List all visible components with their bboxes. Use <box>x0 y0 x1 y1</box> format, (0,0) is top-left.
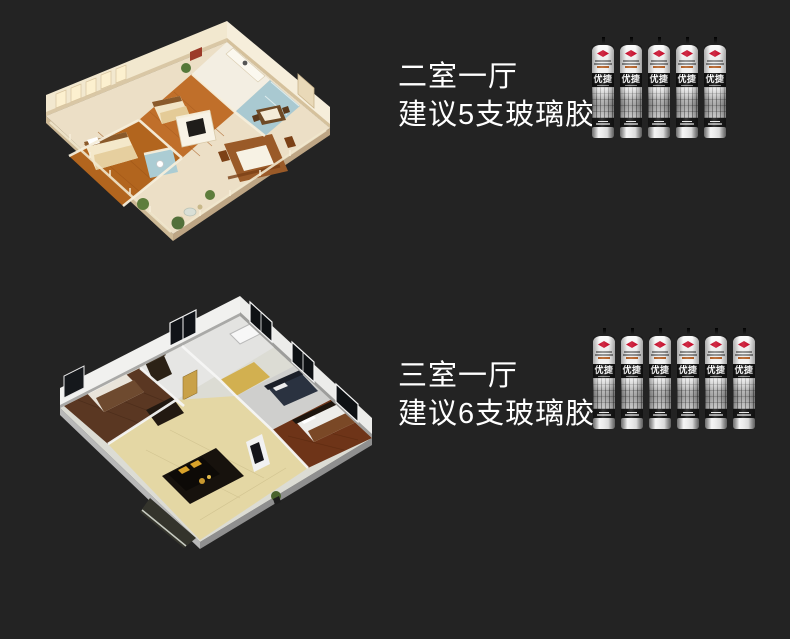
brand-diamond-logo-icon <box>709 50 721 57</box>
tube-foot-band <box>677 409 699 418</box>
tube-label-band: 优捷 <box>677 364 699 378</box>
tube-base <box>704 127 726 138</box>
sealant-tube: 优捷 <box>621 328 643 429</box>
tube-base <box>648 127 670 138</box>
sealant-tube: 优捷 <box>677 328 699 429</box>
tube-shoulder <box>620 45 642 73</box>
tube-label-band: 优捷 <box>705 364 727 378</box>
brand-diamond-logo-icon <box>625 50 637 57</box>
tube-shoulder <box>593 336 615 364</box>
tube-artwork <box>676 87 698 118</box>
tube-nozzle-icon <box>659 328 662 336</box>
tube-foot-band <box>620 118 642 127</box>
tube-brand-label: 优捷 <box>649 74 668 84</box>
tube-base <box>620 127 642 138</box>
tube-artwork <box>677 378 699 409</box>
tube-artwork <box>705 378 727 409</box>
brand-diamond-logo-icon <box>626 341 638 348</box>
tube-fineprint <box>707 351 725 360</box>
tube-brand-label: 优捷 <box>705 74 724 84</box>
section-subtitle: 建议6支玻璃胶 <box>398 395 595 433</box>
tube-foot-band <box>592 118 614 127</box>
tube-foot-band <box>705 409 727 418</box>
tube-artwork <box>620 87 642 118</box>
tube-nozzle-icon <box>602 37 605 45</box>
tube-label-band: 优捷 <box>593 364 615 378</box>
tube-base <box>676 127 698 138</box>
tube-base <box>733 418 755 429</box>
tube-foot-band <box>593 409 615 418</box>
tube-fineprint <box>650 60 668 69</box>
tube-artwork <box>593 378 615 409</box>
tube-shoulder <box>705 336 727 364</box>
tube-fineprint <box>594 60 612 69</box>
tube-brand-label: 优捷 <box>594 365 613 375</box>
tube-label-band: 优捷 <box>620 73 642 87</box>
sealant-tube: 优捷 <box>733 328 755 429</box>
sealant-tube: 优捷 <box>593 328 615 429</box>
tube-base <box>649 418 671 429</box>
section-subtitle: 建议5支玻璃胶 <box>398 96 595 134</box>
tube-nozzle-icon <box>687 328 690 336</box>
tube-shoulder <box>621 336 643 364</box>
tube-brand-label: 优捷 <box>621 74 640 84</box>
brand-diamond-logo-icon <box>597 50 609 57</box>
tube-nozzle-icon <box>715 328 718 336</box>
tube-nozzle-icon <box>686 37 689 45</box>
sealant-tube: 优捷 <box>620 37 642 138</box>
brand-diamond-logo-icon <box>710 341 722 348</box>
tube-fineprint <box>679 351 697 360</box>
tube-fineprint <box>678 60 696 69</box>
tube-brand-label: 优捷 <box>677 74 696 84</box>
brand-diamond-logo-icon <box>682 341 694 348</box>
tube-fineprint <box>651 351 669 360</box>
tube-fineprint <box>595 351 613 360</box>
section-title: 二室一厅 <box>398 58 595 96</box>
tube-artwork <box>648 87 670 118</box>
tube-artwork <box>621 378 643 409</box>
tube-nozzle-icon <box>630 37 633 45</box>
tube-nozzle-icon <box>631 328 634 336</box>
tube-base <box>592 127 614 138</box>
tube-base <box>677 418 699 429</box>
sealant-tube: 优捷 <box>705 328 727 429</box>
tube-shoulder <box>592 45 614 73</box>
tube-brand-label: 优捷 <box>593 74 612 84</box>
tube-label-band: 优捷 <box>648 73 670 87</box>
sealant-tube: 优捷 <box>704 37 726 138</box>
tube-shoulder <box>733 336 755 364</box>
tube-brand-label: 优捷 <box>678 365 697 375</box>
sealant-tube: 优捷 <box>648 37 670 138</box>
tube-shoulder <box>677 336 699 364</box>
tube-label-band: 优捷 <box>649 364 671 378</box>
tube-foot-band <box>676 118 698 127</box>
floorplan-two-bedroom-svg <box>40 16 332 242</box>
floorplan-two-bedroom-image <box>40 16 332 242</box>
tube-foot-band <box>733 409 755 418</box>
tube-brand-label: 优捷 <box>706 365 725 375</box>
tube-fineprint <box>623 351 641 360</box>
brand-diamond-logo-icon <box>598 341 610 348</box>
promo-banner: 二室一厅 建议5支玻璃胶 优捷 优捷 <box>0 0 790 639</box>
section-title: 三室一厅 <box>398 357 595 395</box>
tube-artwork <box>649 378 671 409</box>
tube-artwork <box>733 378 755 409</box>
tube-foot-band <box>621 409 643 418</box>
tube-brand-label: 优捷 <box>622 365 641 375</box>
tube-foot-band <box>648 118 670 127</box>
sealant-tube: 优捷 <box>649 328 671 429</box>
tube-label-band: 优捷 <box>621 364 643 378</box>
tube-fineprint <box>622 60 640 69</box>
tube-label-band: 优捷 <box>592 73 614 87</box>
tube-fineprint <box>706 60 724 69</box>
tube-brand-label: 优捷 <box>650 365 669 375</box>
tube-artwork <box>704 87 726 118</box>
caption-three-bedroom: 三室一厅 建议6支玻璃胶 <box>398 357 595 433</box>
tube-artwork <box>592 87 614 118</box>
brand-diamond-logo-icon <box>681 50 693 57</box>
tube-base <box>705 418 727 429</box>
tube-base <box>621 418 643 429</box>
brand-diamond-logo-icon <box>653 50 665 57</box>
tube-label-band: 优捷 <box>676 73 698 87</box>
tube-nozzle-icon <box>658 37 661 45</box>
tube-shoulder <box>676 45 698 73</box>
tube-nozzle-icon <box>714 37 717 45</box>
brand-diamond-logo-icon <box>654 341 666 348</box>
floorplan-three-bedroom-svg <box>50 290 376 552</box>
tube-shoulder <box>649 336 671 364</box>
sealant-tube: 优捷 <box>592 37 614 138</box>
tube-base <box>593 418 615 429</box>
tube-shoulder <box>704 45 726 73</box>
tube-label-band: 优捷 <box>704 73 726 87</box>
floorplan-three-bedroom-image <box>50 290 376 552</box>
tube-nozzle-icon <box>743 328 746 336</box>
tube-shoulder <box>648 45 670 73</box>
sealant-tube: 优捷 <box>676 37 698 138</box>
tube-foot-band <box>649 409 671 418</box>
tube-nozzle-icon <box>603 328 606 336</box>
tube-row-three-bedroom: 优捷 优捷 优捷 <box>593 328 755 429</box>
tube-label-band: 优捷 <box>733 364 755 378</box>
tube-row-two-bedroom: 优捷 优捷 优捷 <box>592 37 726 138</box>
tube-fineprint <box>735 351 753 360</box>
brand-diamond-logo-icon <box>738 341 750 348</box>
caption-two-bedroom: 二室一厅 建议5支玻璃胶 <box>398 58 595 134</box>
tube-brand-label: 优捷 <box>734 365 753 375</box>
tube-foot-band <box>704 118 726 127</box>
